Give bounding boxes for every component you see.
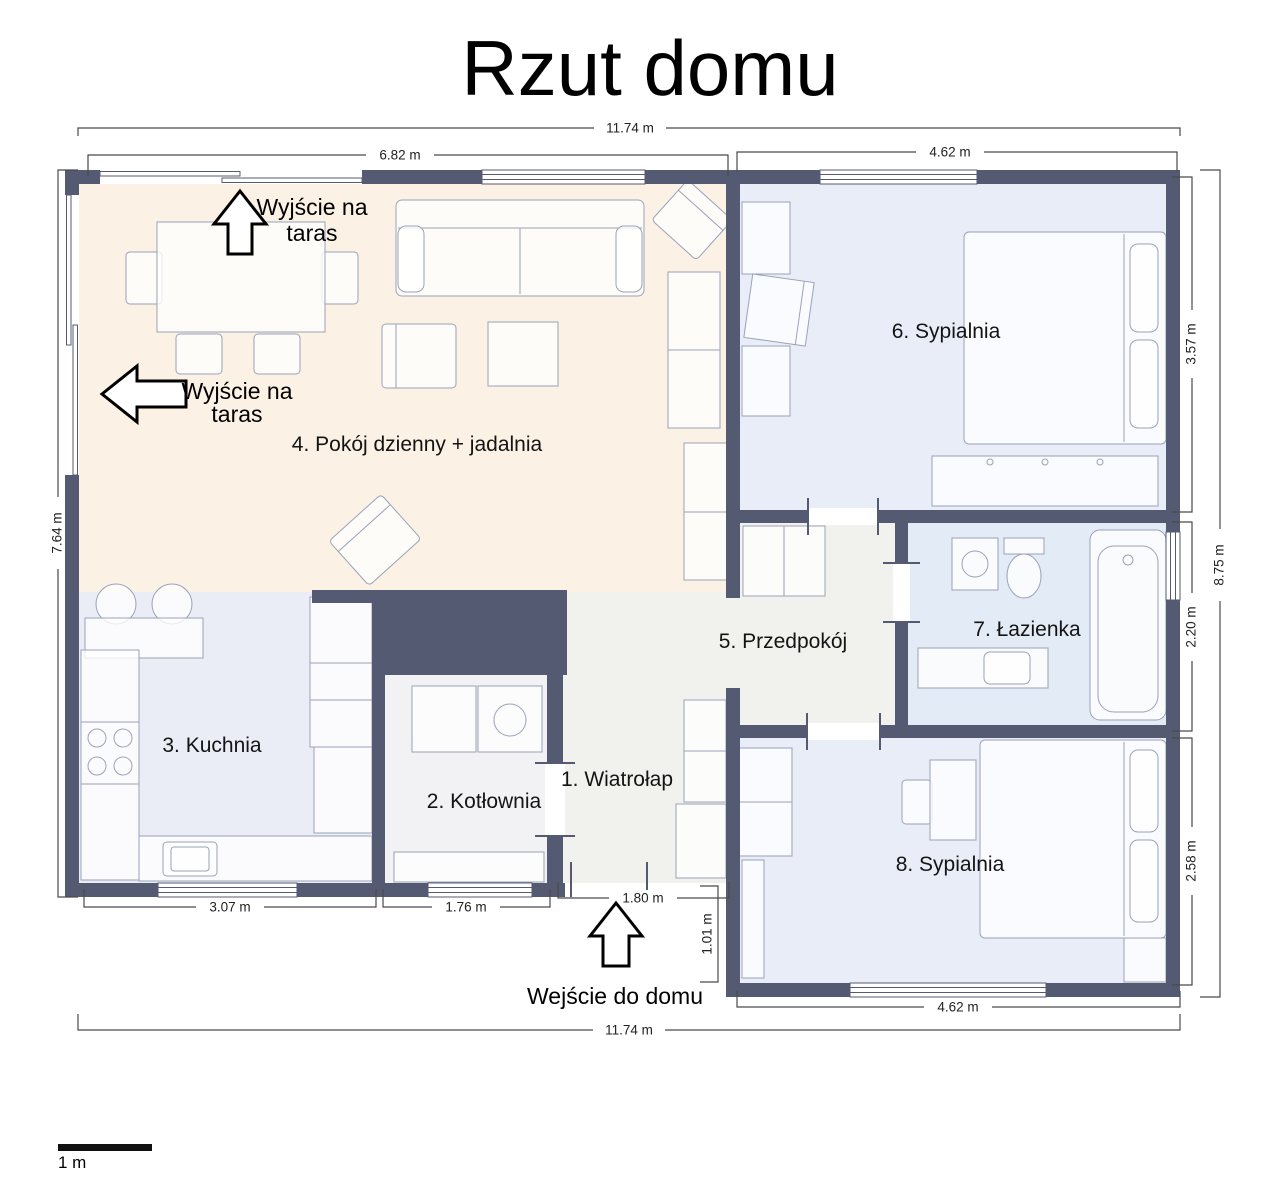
bathtub-icon (1090, 530, 1166, 720)
washer-icon (478, 686, 542, 752)
washing-machine-icon (952, 538, 998, 590)
window-boiler (428, 883, 532, 897)
coffee-table-icon (488, 322, 558, 386)
svg-text:4.62 m: 4.62 m (937, 1000, 978, 1015)
furniture-vestibule (676, 700, 726, 878)
sink-icon (984, 652, 1030, 684)
svg-text:11.74 m: 11.74 m (606, 121, 654, 136)
chair-icon (902, 780, 932, 824)
room-label-sypialnia6: 6. Sypialnia (892, 320, 1001, 343)
boiler-icon (412, 686, 476, 752)
room-label-przedpokoj: 5. Przedpokój (719, 630, 847, 653)
window-bathroom (1166, 532, 1180, 600)
svg-text:3.57 m: 3.57 m (1184, 323, 1199, 364)
armchair-icon (382, 324, 456, 388)
svg-text:6.82 m: 6.82 m (379, 148, 420, 163)
page-title: Rzut domu (461, 24, 838, 112)
room-label-kuchnia: 3. Kuchnia (162, 734, 262, 757)
scale-bar-label: 1 m (58, 1153, 86, 1172)
svg-text:4.62 m: 4.62 m (929, 145, 970, 160)
label-terrace-top-line2: taras (286, 220, 337, 246)
room-label-sypialnia8: 8. Sypialnia (896, 853, 1005, 876)
label-terrace-left-line2: taras (211, 401, 262, 427)
pillow-icon (1130, 750, 1158, 832)
stove-icon (81, 722, 139, 784)
svg-text:2.20 m: 2.20 m (1184, 606, 1199, 647)
dresser-icon (932, 456, 1158, 506)
terrace-door-left (65, 195, 79, 475)
svg-text:7.64 m: 7.64 m (50, 512, 65, 553)
window-bedroom6 (820, 170, 977, 184)
dresser-icon (742, 202, 790, 274)
toilet-icon (1004, 538, 1044, 554)
svg-text:1.80 m: 1.80 m (622, 891, 663, 906)
svg-text:1.76 m: 1.76 m (445, 900, 486, 915)
label-entrance: Wejście do domu (527, 983, 703, 1009)
scale-bar-line (58, 1144, 152, 1151)
label-terrace-top-line1: Wyjście na (257, 194, 368, 220)
svg-text:11.74 m: 11.74 m (605, 1023, 653, 1038)
pillow-icon (1130, 840, 1158, 922)
pillow-icon (1130, 340, 1158, 428)
floor-plan-canvas: Rzut domu (0, 0, 1280, 1183)
furniture-hallway (743, 526, 825, 596)
window-kitchen (158, 883, 297, 897)
dim-top-bedroom6: 4.62 m (737, 144, 1177, 172)
dim-top-total: 11.74 m (78, 120, 1180, 136)
room-label-wiatrolap: 1. Wiatrołap (561, 768, 673, 791)
closet-icon (742, 860, 764, 978)
fridge-icon (310, 597, 372, 747)
arrow-entrance-icon (590, 903, 642, 966)
desk-icon (930, 760, 976, 840)
window-bedroom8 (850, 983, 1046, 997)
dim-bottom-total: 11.74 m (78, 1014, 1180, 1038)
svg-text:2.58 m: 2.58 m (1184, 840, 1199, 881)
nightstand-icon (1124, 938, 1166, 982)
scale-bar: 1 m (58, 1144, 152, 1172)
svg-text:1.01 m: 1.01 m (700, 913, 715, 954)
dresser-icon (742, 346, 790, 416)
pillow-icon (1130, 244, 1158, 332)
room-label-kotlownia: 2. Kotłownia (427, 790, 542, 813)
svg-text:3.07 m: 3.07 m (209, 900, 250, 915)
terrace-slider-top (100, 170, 362, 184)
dim-right-total: 8.75 m (1200, 170, 1227, 997)
svg-text:8.75 m: 8.75 m (1212, 544, 1227, 585)
dim-bottom-offset: 1.01 m (699, 886, 718, 982)
window-living (482, 170, 645, 184)
room-label-lazienka: 7. Łazienka (973, 618, 1081, 641)
room-label-pokoj-dzienny: 4. Pokój dzienny + jadalnia (292, 433, 543, 456)
